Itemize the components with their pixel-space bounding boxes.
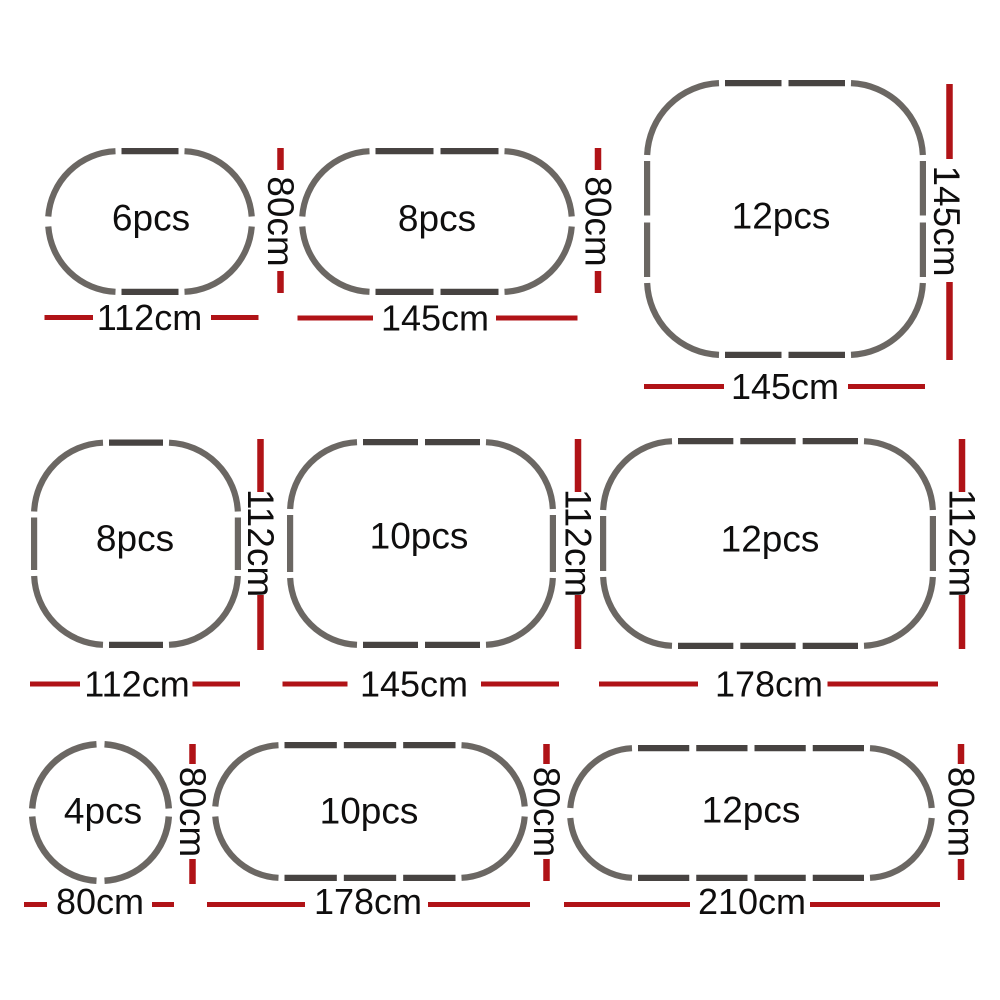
svg-text:145cm: 145cm — [381, 298, 489, 339]
svg-text:12pcs: 12pcs — [732, 196, 831, 237]
svg-text:10pcs: 10pcs — [320, 791, 419, 832]
svg-text:178cm: 178cm — [314, 881, 422, 922]
svg-text:8pcs: 8pcs — [398, 198, 476, 239]
svg-text:145cm: 145cm — [926, 165, 967, 276]
svg-text:145cm: 145cm — [360, 664, 468, 705]
svg-text:80cm: 80cm — [56, 881, 144, 922]
svg-text:112cm: 112cm — [240, 489, 281, 597]
svg-text:6pcs: 6pcs — [112, 198, 190, 239]
svg-text:80cm: 80cm — [526, 767, 567, 857]
svg-text:10pcs: 10pcs — [370, 516, 469, 557]
svg-text:80cm: 80cm — [260, 176, 301, 266]
svg-text:112cm: 112cm — [942, 489, 983, 597]
svg-text:112cm: 112cm — [558, 489, 599, 597]
svg-text:80cm: 80cm — [941, 767, 982, 857]
svg-text:12pcs: 12pcs — [721, 519, 820, 560]
svg-text:145cm: 145cm — [731, 366, 839, 407]
svg-text:4pcs: 4pcs — [64, 791, 142, 832]
svg-text:178cm: 178cm — [715, 664, 823, 705]
svg-text:80cm: 80cm — [578, 176, 619, 266]
svg-text:8pcs: 8pcs — [96, 518, 174, 559]
svg-text:210cm: 210cm — [698, 881, 806, 922]
svg-text:112cm: 112cm — [97, 297, 202, 338]
svg-text:80cm: 80cm — [172, 767, 213, 857]
svg-text:12pcs: 12pcs — [702, 790, 801, 831]
svg-text:112cm: 112cm — [84, 664, 189, 705]
